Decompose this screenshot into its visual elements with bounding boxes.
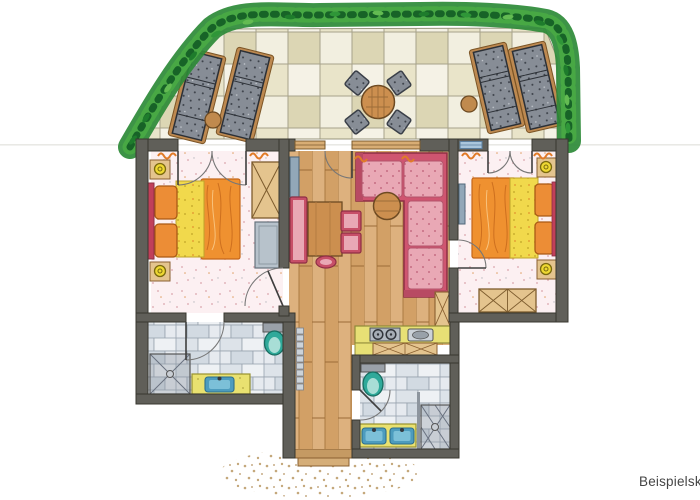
table-lamp	[155, 266, 166, 277]
watermark-text: Beispielski	[639, 474, 700, 489]
bed-sheet	[176, 181, 204, 257]
wardrobe	[252, 162, 281, 218]
toilet	[361, 364, 385, 396]
stool	[316, 256, 336, 268]
bed-sheet	[510, 178, 538, 258]
tall-cabinet	[435, 292, 450, 326]
window	[460, 142, 482, 149]
dresser	[255, 222, 281, 268]
window	[352, 141, 420, 149]
kitchen-counter	[355, 326, 450, 343]
vanity-sink	[192, 374, 250, 394]
stove	[370, 328, 400, 341]
coffee-table	[374, 193, 401, 220]
window	[295, 141, 325, 149]
table-lamp	[541, 162, 552, 173]
side-table	[205, 112, 221, 128]
shower-partition	[417, 392, 420, 449]
headboard	[552, 182, 556, 256]
kitchen-sink	[408, 329, 433, 341]
floor-plan-drawing	[0, 0, 700, 500]
table-lamp	[541, 264, 552, 275]
wall-tv	[459, 184, 465, 224]
entry-steps	[292, 449, 355, 466]
radiator	[297, 328, 304, 390]
dining-table	[308, 202, 342, 256]
page-divider-line	[0, 144, 700, 146]
pillow	[535, 184, 554, 216]
base-cabinets	[355, 343, 437, 355]
shower	[150, 354, 190, 394]
wardrobe	[479, 289, 536, 312]
pillow	[155, 186, 177, 219]
double-vanity	[358, 424, 416, 447]
floor-plan-page: Beispielski	[0, 0, 700, 500]
side-table	[461, 96, 477, 112]
pillow	[155, 224, 177, 257]
table-lamp	[155, 164, 166, 175]
tv-sideboard	[290, 157, 299, 197]
headboard	[148, 183, 154, 259]
shower	[421, 405, 450, 449]
terrace	[128, 10, 571, 147]
pillow	[535, 222, 554, 254]
